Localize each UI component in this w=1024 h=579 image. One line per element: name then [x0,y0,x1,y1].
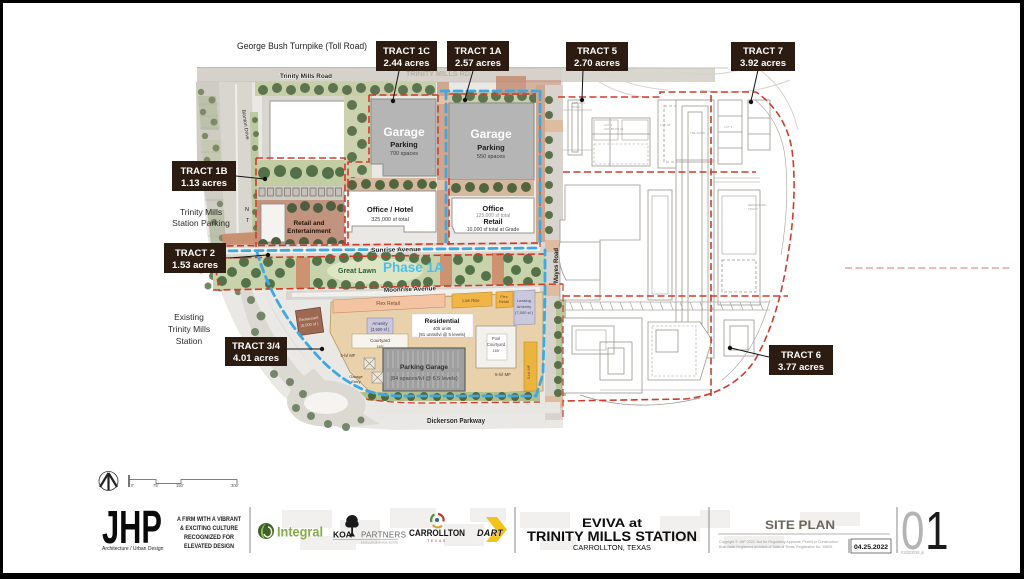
svg-text:Mayes Road: Mayes Road [554,248,560,283]
svg-text:Courtyard: Courtyard [487,342,506,347]
svg-text:Dickerson Parkway: Dickerson Parkway [427,416,486,425]
svg-text:Pool: Pool [492,336,500,341]
svg-text:Trinity Mills Road: Trinity Mills Road [280,73,332,80]
svg-text:Existing: Existing [174,312,204,322]
svg-text:Office / Hotel: Office / Hotel [367,205,413,214]
svg-text:5-lvl MF: 5-lvl MF [495,372,511,377]
svg-text:2.70 acres: 2.70 acres [574,58,620,69]
svg-text:Leasing: Leasing [517,298,531,303]
svg-text:TEXAS: TEXAS [427,539,447,543]
svg-text:Retail: Retail [483,219,502,226]
svg-text:1.13 acres: 1.13 acres [181,178,227,189]
svg-text:Trinity Mills: Trinity Mills [168,324,210,334]
svg-text:Bran Batts Registered Architec: Bran Batts Registered Architect of State… [719,545,833,549]
svg-text:1.53 acres: 1.53 acres [172,260,218,271]
svg-text:TRACT 2: TRACT 2 [175,248,215,259]
svg-text:Parking: Parking [390,140,418,149]
svg-text:Great Lawn: Great Lawn [338,268,376,275]
svg-text:Garage: Garage [470,127,512,141]
svg-text:(84 spaces/lvl @ 6.5 levels): (84 spaces/lvl @ 6.5 levels) [390,376,458,382]
svg-text:5-lvl MF: 5-lvl MF [526,364,531,379]
svg-text:Station: Station [176,336,203,346]
svg-text:Retail and: Retail and [293,220,324,227]
svg-text:Integral: Integral [277,525,323,540]
svg-text:TRACT 7: TRACT 7 [743,46,783,57]
svg-text:TML ADDN: TML ADDN [690,131,705,135]
svg-text:Low Rise: Low Rise [462,298,480,303]
svg-text:5-lvl MF: 5-lvl MF [341,353,356,358]
svg-text:TRACT: TRACT [748,207,758,211]
svg-text:325,000 sf total: 325,000 sf total [371,217,409,223]
svg-text:Flex Retail: Flex Retail [376,301,400,307]
svg-text:1: 1 [925,501,948,561]
svg-text:550 spaces: 550 spaces [477,154,505,160]
svg-text:2.57 acres: 2.57 acres [455,58,501,69]
svg-text:Parking: Parking [477,143,505,152]
svg-text:TRACT 1A: TRACT 1A [455,46,502,57]
svg-text:CARROLLTON: CARROLLTON [409,528,465,538]
svg-text:TRACT 3/4: TRACT 3/4 [232,341,281,352]
svg-text:Station Parking: Station Parking [172,218,230,228]
svg-text:A FIRM WITH A VIBRANT: A FIRM WITH A VIBRANT [177,517,241,523]
svg-text:Amenity: Amenity [517,304,531,309]
svg-text:150': 150' [176,483,184,488]
svg-text:Sunrise Avenue: Sunrise Avenue [371,247,422,254]
svg-text:EVIVA at: EVIVA at [582,516,642,530]
svg-text:TRACT 5: TRACT 5 [577,46,618,57]
svg-text:Entry: Entry [351,379,360,384]
svg-text:0': 0' [131,483,134,488]
svg-text:Entertainment: Entertainment [287,228,332,235]
svg-text:Trinity Mills: Trinity Mills [180,207,222,217]
svg-text:& EXCITING CULTURE: & EXCITING CULTURE [180,526,238,532]
svg-text:160': 160' [376,345,383,349]
svg-text:Garage: Garage [383,125,425,139]
svg-text:RECOGNIZED FOR: RECOGNIZED FOR [184,535,235,541]
svg-text:3.92 acres: 3.92 acres [740,58,786,69]
svg-text:KOA: KOA [333,530,352,540]
svg-text:TRINITY MILLS STATION: TRINITY MILLS STATION [527,529,697,544]
svg-text:Copyright © JHP 2022. Not for: Copyright © JHP 2022. Not for Regulatory… [719,540,839,544]
svg-text:TRACT 1B: TRACT 1B [181,166,228,177]
svg-text:DART: DART [477,528,504,538]
svg-text:Architecture / Urban Design: Architecture / Urban Design [102,546,164,552]
svg-text:75': 75' [153,483,159,488]
svg-text:#2020036 js: #2020036 js [901,550,924,555]
svg-text:George Bush Turnpike (Toll Roa: George Bush Turnpike (Toll Road) [237,41,367,51]
svg-text:165': 165' [492,349,499,353]
svg-text:Office: Office [482,204,503,213]
svg-text:3.77 acres: 3.77 acres [778,362,824,373]
svg-text:700 spaces: 700 spaces [390,151,418,157]
svg-text:LOT 1B: LOT 1B [660,123,670,127]
svg-text:(91 units/lvl @ 5 levels): (91 units/lvl @ 5 levels) [419,332,466,337]
svg-text:Amenity: Amenity [372,321,388,326]
svg-text:(7,500 sf ): (7,500 sf ) [515,310,534,315]
svg-text:SITE PLAN: SITE PLAN [765,518,835,532]
svg-text:Retail: Retail [499,299,509,304]
svg-text:EXCELLENCE IN REAL ESTATE: EXCELLENCE IN REAL ESTATE [361,541,398,545]
svg-text:TRACT 1C: TRACT 1C [383,46,430,57]
svg-text:LOT 3: LOT 3 [724,125,733,129]
svg-text:ELEVATED DESIGN: ELEVATED DESIGN [184,544,234,550]
svg-text:Parking Garage: Parking Garage [400,364,448,371]
svg-text:(3,500 sf ): (3,500 sf ) [371,327,390,332]
svg-text:Phase 1A: Phase 1A [383,260,444,275]
svg-text:CARROLLTON, TEXAS: CARROLLTON, TEXAS [573,543,651,552]
svg-text:405 units: 405 units [433,326,452,331]
svg-text:N: N [245,207,249,213]
svg-text:Courtyard: Courtyard [370,338,390,343]
svg-text:VOL 88,PG 14: VOL 88,PG 14 [604,127,624,131]
svg-text:10,000 sf total at Grade: 10,000 sf total at Grade [467,227,519,233]
svg-text:300': 300' [231,483,239,488]
svg-text:04.25.2022: 04.25.2022 [854,544,888,551]
svg-text:4.01 acres: 4.01 acres [233,353,279,364]
svg-text:Residential: Residential [425,318,460,325]
svg-text:2.44 acres: 2.44 acres [384,58,430,69]
svg-text:TRACT 6: TRACT 6 [781,350,821,361]
svg-text:BLK A: BLK A [572,105,580,109]
svg-text:PARTNERS: PARTNERS [361,531,406,540]
